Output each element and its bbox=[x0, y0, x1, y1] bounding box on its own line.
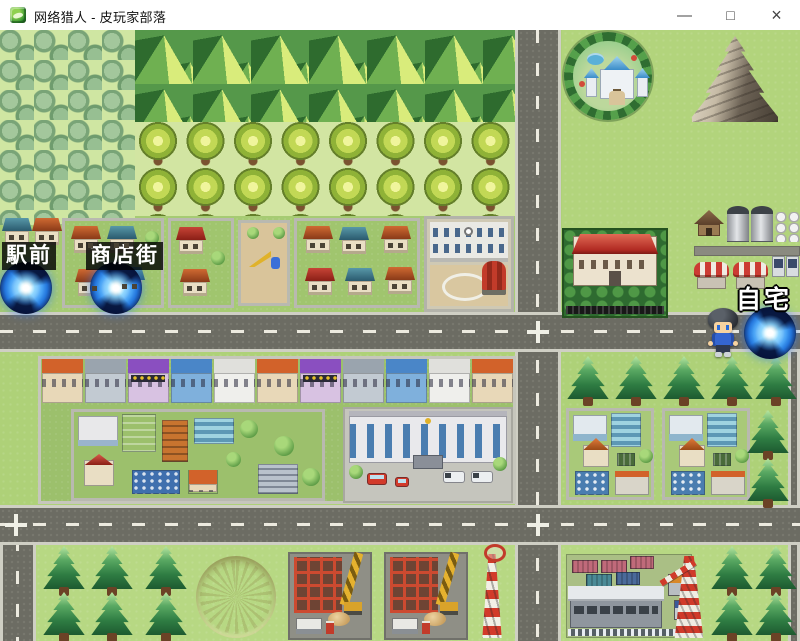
shipping-container bbox=[630, 556, 654, 569]
construction-site bbox=[384, 552, 468, 640]
city-block bbox=[566, 408, 654, 500]
orange-roof-house bbox=[679, 445, 705, 467]
bush bbox=[493, 457, 507, 471]
shop-front bbox=[256, 359, 299, 405]
crane-arm bbox=[436, 552, 460, 606]
house-window bbox=[183, 244, 188, 249]
pine-tree bbox=[754, 546, 798, 596]
farm-hut bbox=[694, 210, 724, 236]
school-building bbox=[430, 222, 508, 262]
city-block bbox=[662, 408, 750, 500]
farm-path bbox=[694, 246, 800, 256]
pine-tree bbox=[754, 356, 798, 406]
label-shotengai: 商店街 bbox=[86, 242, 163, 270]
road-horizontal-north bbox=[0, 312, 800, 352]
castle-park bbox=[564, 32, 652, 120]
intersection-cross-mark bbox=[5, 514, 27, 536]
karaoke-shop-front bbox=[127, 359, 170, 405]
pine-tree bbox=[710, 356, 754, 406]
player-character[interactable] bbox=[706, 308, 740, 358]
storage-bins bbox=[713, 453, 731, 466]
player-hand bbox=[733, 341, 738, 346]
apartment-slab bbox=[671, 471, 705, 495]
house bbox=[176, 227, 206, 254]
office-building bbox=[78, 416, 118, 446]
shop-sign bbox=[303, 375, 337, 382]
house bbox=[385, 267, 415, 294]
shop-front bbox=[385, 359, 428, 405]
park-flower bbox=[631, 55, 637, 61]
school-yard bbox=[430, 265, 508, 306]
red-drum bbox=[422, 621, 430, 634]
pine-tree bbox=[746, 410, 790, 460]
house bbox=[2, 218, 32, 245]
bush bbox=[349, 465, 363, 479]
house-window bbox=[310, 243, 315, 248]
house-window bbox=[392, 284, 397, 289]
shop-sign bbox=[131, 375, 165, 382]
park-grounds bbox=[573, 41, 643, 111]
storage-bins bbox=[617, 453, 635, 466]
glass-building bbox=[122, 414, 156, 452]
site-shed bbox=[392, 618, 418, 634]
warehouse bbox=[570, 586, 662, 628]
shop-front bbox=[188, 470, 218, 494]
vending-machine bbox=[772, 256, 785, 277]
mansion-building bbox=[573, 236, 657, 286]
pine-tree bbox=[42, 546, 86, 596]
office-building bbox=[573, 415, 607, 441]
house bbox=[180, 269, 210, 296]
shipping-container bbox=[616, 572, 640, 585]
playground-slide bbox=[249, 251, 271, 267]
green-mountain-ridge bbox=[135, 30, 515, 122]
park-pond bbox=[587, 53, 604, 65]
shop-front bbox=[41, 359, 84, 405]
house bbox=[381, 226, 411, 253]
house bbox=[305, 268, 335, 295]
shop-front bbox=[342, 359, 385, 405]
bush bbox=[226, 452, 241, 467]
player-hand bbox=[708, 341, 713, 346]
glass-building bbox=[611, 413, 641, 447]
bush bbox=[274, 436, 294, 456]
radio-tower bbox=[476, 544, 508, 638]
residential-block bbox=[294, 218, 420, 308]
canister-stack bbox=[775, 212, 800, 242]
close-button[interactable]: × bbox=[754, 0, 799, 30]
site-shed bbox=[296, 618, 322, 634]
house-window bbox=[312, 285, 317, 290]
shipping-container bbox=[572, 560, 598, 573]
apartment-slab bbox=[132, 470, 180, 494]
pine-tree bbox=[566, 356, 610, 406]
shop-front bbox=[170, 359, 213, 405]
intersection-cross-mark bbox=[527, 514, 549, 536]
vending-machine bbox=[786, 256, 799, 277]
player-shoe bbox=[724, 352, 731, 357]
house bbox=[32, 218, 62, 245]
red-drum bbox=[326, 621, 334, 634]
house-window bbox=[9, 235, 14, 240]
pine-tree bbox=[746, 458, 790, 508]
mansion-door bbox=[609, 271, 621, 286]
pine-tree bbox=[90, 592, 134, 641]
karaoke-shop-front bbox=[299, 359, 342, 405]
maximize-button[interactable]: □ bbox=[708, 0, 753, 30]
pine-tree bbox=[754, 592, 798, 641]
house-window bbox=[82, 286, 87, 291]
bush bbox=[273, 227, 285, 239]
castle-tower bbox=[637, 77, 648, 97]
bush bbox=[302, 468, 320, 486]
minimize-button[interactable]: — bbox=[662, 0, 707, 30]
oil-derrick bbox=[662, 552, 710, 638]
house-window bbox=[388, 243, 393, 248]
crane-arm bbox=[340, 552, 364, 606]
hut-door bbox=[706, 228, 712, 236]
intersection-cross-mark bbox=[527, 321, 549, 343]
glass-building bbox=[707, 413, 737, 447]
residential-block bbox=[168, 218, 234, 308]
house-window bbox=[352, 285, 357, 290]
apartment-slab bbox=[575, 471, 609, 495]
road-horizontal-south bbox=[0, 505, 800, 545]
red-roof-mansion bbox=[562, 228, 668, 318]
house bbox=[339, 227, 369, 254]
white-truck bbox=[471, 471, 493, 483]
pine-tree bbox=[42, 592, 86, 641]
red-scaffolding bbox=[294, 557, 342, 613]
bush bbox=[639, 449, 653, 463]
school-clock bbox=[464, 227, 473, 236]
silo bbox=[727, 206, 749, 242]
mansion-fence bbox=[566, 306, 664, 314]
tree-grove bbox=[135, 122, 515, 218]
school bbox=[424, 216, 514, 312]
forest bbox=[0, 30, 135, 225]
glass-building bbox=[194, 418, 234, 444]
orange-roof-house bbox=[583, 445, 609, 467]
app-icon bbox=[10, 7, 26, 23]
player-face bbox=[714, 322, 732, 333]
shop-front bbox=[615, 471, 649, 495]
window-title: 网络猎人 - 皮玩家部落 bbox=[34, 7, 166, 26]
house-window bbox=[187, 286, 192, 291]
city-hall bbox=[343, 407, 513, 503]
road-dash bbox=[0, 330, 800, 333]
label-jitaku: 自宅 bbox=[736, 280, 792, 316]
bush bbox=[247, 227, 259, 239]
white-truck bbox=[443, 471, 465, 483]
red-car bbox=[367, 473, 387, 485]
title-bar[interactable]: 网络猎人 - 皮玩家部落 — □ × bbox=[0, 0, 800, 30]
shop-front bbox=[213, 359, 256, 405]
pine-tree bbox=[614, 356, 658, 406]
pine-tree bbox=[144, 546, 188, 596]
red-scaffolding bbox=[390, 557, 438, 613]
shop-front bbox=[471, 359, 514, 405]
pine-tree bbox=[662, 356, 706, 406]
park-path bbox=[609, 91, 625, 105]
gymnasium bbox=[482, 261, 506, 295]
house bbox=[345, 268, 375, 295]
silo bbox=[751, 206, 773, 242]
house-window bbox=[39, 235, 44, 240]
player-shoe bbox=[715, 352, 722, 357]
road-dash bbox=[0, 523, 800, 526]
playground-figure bbox=[271, 257, 280, 269]
park-flower bbox=[579, 81, 585, 87]
shop-front bbox=[428, 359, 471, 405]
shopping-street-row bbox=[41, 359, 514, 405]
gray-building bbox=[258, 464, 298, 494]
bush bbox=[211, 251, 225, 265]
pine-tree bbox=[144, 592, 188, 641]
game-window: 网络猎人 - 皮玩家部落 — □ × bbox=[0, 0, 800, 641]
crater bbox=[196, 556, 276, 638]
label-ekimae: 駅前 bbox=[2, 242, 56, 270]
house bbox=[303, 226, 333, 253]
house-window bbox=[114, 243, 119, 248]
playground bbox=[238, 220, 290, 306]
pine-tree bbox=[710, 546, 754, 596]
orange-tower bbox=[162, 420, 188, 462]
castle-tower bbox=[586, 77, 597, 97]
city-district bbox=[38, 356, 516, 504]
downtown-block bbox=[71, 409, 325, 501]
office-building bbox=[669, 415, 703, 441]
market-stall bbox=[694, 262, 729, 289]
pine-tree bbox=[710, 592, 754, 641]
construction-site bbox=[288, 552, 372, 640]
house-window bbox=[78, 243, 83, 248]
house-window bbox=[122, 284, 127, 289]
game-map-canvas[interactable]: 駅前 商店街 自宅 bbox=[0, 30, 800, 641]
bush bbox=[240, 420, 258, 438]
shop-front bbox=[711, 471, 745, 495]
house-window bbox=[346, 244, 351, 249]
city-hall-entrance bbox=[413, 455, 443, 469]
shop-front bbox=[84, 359, 127, 405]
red-roof-house bbox=[84, 460, 114, 486]
pine-tree bbox=[90, 546, 134, 596]
red-car bbox=[395, 477, 409, 487]
